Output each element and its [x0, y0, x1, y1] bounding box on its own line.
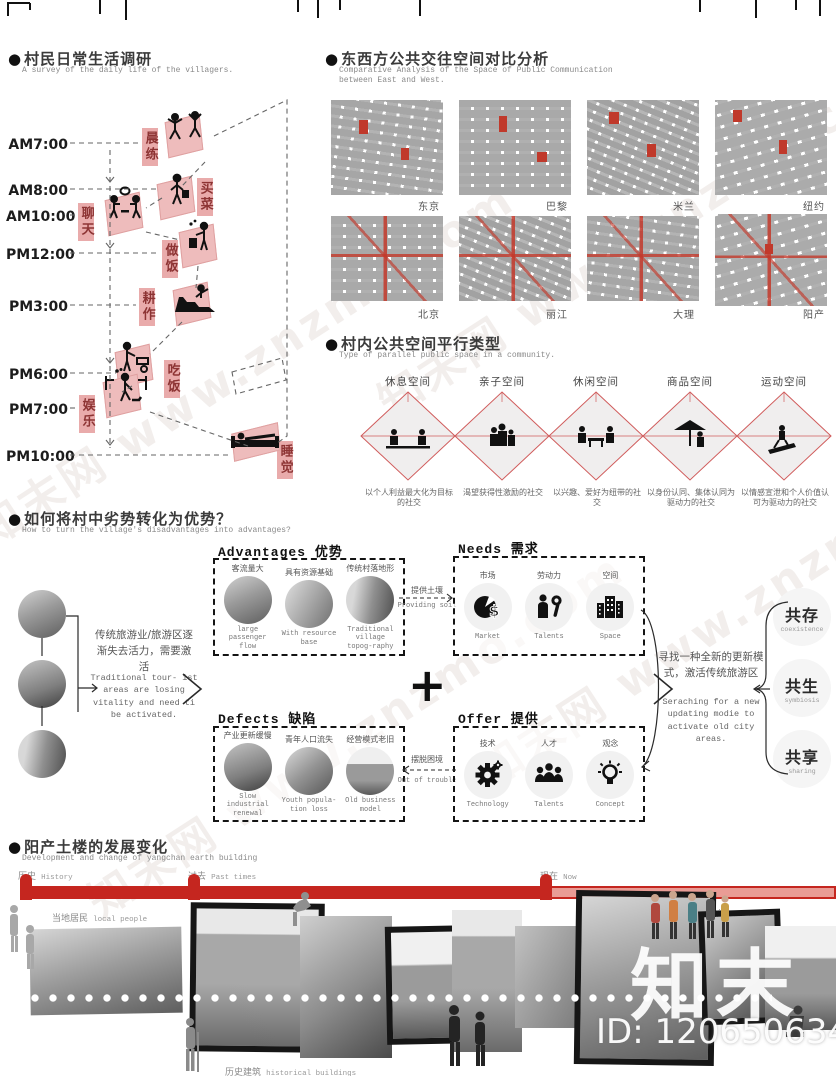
map-paris [459, 100, 571, 195]
pie-dollar-icon: $ [464, 583, 512, 631]
bullet-icon: ● [325, 50, 339, 68]
village-photo [18, 660, 66, 708]
time-label: AM7:00 [6, 137, 68, 153]
buildings-icon [586, 583, 634, 631]
walking-figure [176, 1016, 204, 1076]
map-label: 纽约 [803, 198, 825, 213]
offer-label-en: Talents [520, 801, 578, 809]
space-description: 以身份认同、集体认同为驱动力的社交 [645, 488, 737, 509]
trouble-arrow-label-cn: 摆脱困境 [399, 754, 455, 765]
painter-figure [283, 888, 317, 928]
isometric-space-boxes [348, 388, 832, 484]
defect-label-cn: 青年人口流失 [280, 734, 338, 745]
bullet-icon: ● [8, 510, 22, 528]
comparison-subtitle: Comparative Analysis of the Space of Pub… [339, 66, 617, 87]
transform-subtitle: How to turn the village's disadvantages … [22, 526, 291, 536]
offer-box: 技术 [453, 726, 645, 822]
advantage-label-en: With resource base [280, 630, 338, 646]
image-id-watermark: ID: 1206506342 [596, 1012, 836, 1052]
milestone-label-en: Past times [211, 874, 256, 882]
map-landmark [733, 110, 742, 122]
map-landmark [647, 144, 656, 157]
people-icon [525, 751, 573, 799]
time-label: PM6:00 [6, 367, 68, 383]
gear-icon [464, 751, 512, 799]
map-landmark [537, 152, 547, 162]
outcome-label-cn: 共生 [785, 673, 819, 697]
map-label: 东京 [418, 198, 440, 213]
map-label: 大理 [673, 306, 695, 321]
village-photo [18, 730, 66, 778]
need-label-cn: 空间 [581, 570, 639, 581]
advantages-box: 客流量大 large passenger flow 具有资源基础 With re… [213, 558, 405, 656]
space-name: 亲子空间 [457, 374, 547, 389]
advantage-label-cn: 客流量大 [219, 563, 277, 574]
activity-label-chip: 耕作 [139, 288, 155, 326]
map-landmark [401, 148, 409, 160]
offer-item: 观念 Concept [581, 738, 639, 809]
defect-label-en: Youth popula-tion loss [280, 797, 338, 813]
map-label: 北京 [418, 306, 440, 321]
defects-box: 产业更新缓慢 Slow industrial renewal 青年人口流失 Yo… [213, 726, 405, 822]
space-description: 以兴趣、爱好为纽带的社交 [551, 488, 643, 509]
outcome-label-cn: 共存 [785, 602, 819, 626]
offer-label-en: Technology [459, 801, 517, 809]
defect-label-cn: 产业更新缓慢 [219, 730, 277, 741]
space-name: 商品空间 [645, 374, 735, 389]
map-label: 巴黎 [546, 198, 568, 213]
need-label-en: Talents [520, 633, 578, 641]
advantage-label-en: Traditional village topog-raphy [341, 626, 399, 650]
milestone-label-en: History [41, 874, 73, 882]
map-beijing [331, 216, 443, 301]
defect-item: 产业更新缓慢 Slow industrial renewal [219, 730, 277, 817]
outcome-label-en: symbiosis [784, 697, 819, 704]
space-name: 休息空间 [363, 374, 453, 389]
need-label-en: Market [459, 633, 517, 641]
outcome-label-en: sharing [788, 768, 815, 775]
map-label: 米兰 [673, 198, 695, 213]
timeline-bar-solid [20, 886, 540, 899]
local-people-figures [2, 903, 42, 981]
advantage-photo [346, 576, 394, 624]
trouble-arrow-label-en: Out of trouble [395, 777, 459, 785]
need-item: 市场 $ Market [459, 570, 517, 641]
problem-text-en: Traditional tour- ist areas are losing v… [88, 672, 200, 721]
historical-buildings-label: 历史建筑 historical buildings [225, 1060, 356, 1076]
timeline-marker [540, 874, 552, 900]
label-cn: 当地居民 [52, 914, 88, 924]
earth-building-photo [515, 926, 577, 1028]
bullet-icon: ● [8, 50, 22, 68]
soil-arrow-label-cn: 提供土壤 [399, 585, 455, 596]
map-newyork [715, 100, 827, 195]
map-yangchan [715, 214, 827, 306]
outcome-coexistence: 共存 coexistence [773, 588, 831, 646]
advantage-item: 客流量大 large passenger flow [219, 563, 277, 650]
defect-label-en: Slow industrial renewal [219, 793, 277, 817]
time-label: AM8:00 [6, 183, 68, 199]
map-label: 阳产 [803, 306, 825, 321]
need-item: 劳动力 Talents [520, 570, 578, 641]
map-dali [587, 216, 699, 301]
needs-box: 市场 $ Market 劳动力 Talents [453, 556, 645, 656]
space-name: 休闲空间 [551, 374, 641, 389]
activity-label-chip: 做饭 [162, 240, 178, 278]
silhouette-figures [438, 1002, 498, 1072]
need-label-en: Space [581, 633, 639, 641]
activity-label-chip: 吃饭 [164, 360, 180, 398]
defect-item: 经营模式老旧 Old business model [341, 734, 399, 813]
activity-label-chip: 聊天 [78, 203, 94, 241]
space-description: 渴望获得性激励的社交 [457, 488, 549, 498]
village-photo [18, 590, 66, 638]
solution-text-en: Seraching for a new updating modie to ac… [652, 696, 770, 745]
map-label: 丽江 [546, 306, 568, 321]
map-tokyo [331, 100, 443, 195]
activity-label-chip: 娱乐 [79, 395, 95, 433]
advantage-item: 传统村落地形 Traditional village topog-raphy [341, 563, 399, 650]
map-milan [587, 100, 699, 195]
label-en: historical buildings [266, 1070, 356, 1076]
offer-header: Offer 提供 [458, 708, 539, 727]
advantage-photo [285, 580, 333, 628]
defect-photo [346, 747, 394, 795]
lightbulb-icon [586, 751, 634, 799]
map-landmark [779, 140, 787, 154]
time-label: PM10:00 [6, 449, 68, 465]
advantage-label-cn: 传统村落地形 [341, 563, 399, 574]
offer-item: 人才 Talents [520, 738, 578, 809]
label-en: local people [93, 916, 147, 924]
local-people-label: 当地居民 local people [52, 906, 147, 925]
defect-label-cn: 经营模式老旧 [341, 734, 399, 745]
advantage-label-cn: 具有资源基础 [280, 567, 338, 578]
milestone-label-en: Now [563, 874, 577, 882]
solution-text-cn: 寻找一种全新的更新模式，激活传统旅游区 [658, 650, 764, 682]
bullet-icon: ● [325, 335, 339, 353]
time-label: PM3:00 [6, 299, 68, 315]
time-label: PM7:00 [6, 402, 68, 418]
defect-label-en: Old business model [341, 797, 399, 813]
space-name: 运动空间 [739, 374, 829, 389]
parallel-space-subtitle: Type of parallel public space in a commu… [339, 351, 555, 361]
advantage-label-en: large passenger flow [219, 626, 277, 650]
defect-photo [285, 747, 333, 795]
earth-building-photo [300, 916, 392, 1058]
defect-photo [224, 743, 272, 791]
development-subtitle: Development and change of yangchan earth… [22, 854, 257, 864]
plus-sign: + [408, 658, 447, 712]
timeline-marker [20, 874, 32, 900]
offer-item: 技术 [459, 738, 517, 809]
timeline-marker [188, 874, 200, 900]
outcome-sharing: 共享 sharing [773, 730, 831, 788]
outcome-symbiosis: 共生 symbiosis [773, 659, 831, 717]
soil-arrow-label-en: Providing soil [395, 602, 459, 610]
needs-header: Needs 需求 [458, 538, 539, 557]
worker-wrench-icon [525, 583, 573, 631]
daily-life-subtitle: A survey of the daily life of the villag… [22, 66, 292, 76]
time-label: PM12:00 [6, 247, 68, 263]
problem-text-cn: 传统旅游业/旅游区逐渐失去活力，需要激活 [92, 628, 196, 675]
advantage-photo [224, 576, 272, 624]
activity-label-chip: 晨练 [142, 128, 158, 166]
space-description: 以个人利益最大化为目标的社交 [363, 488, 455, 509]
offer-label-cn: 观念 [581, 738, 639, 749]
defect-item: 青年人口流失 Youth popula-tion loss [280, 734, 338, 813]
label-cn: 历史建筑 [225, 1068, 261, 1076]
need-label-cn: 劳动力 [520, 570, 578, 581]
offer-label-en: Concept [581, 801, 639, 809]
defects-header: Defects 缺陷 [218, 708, 316, 727]
map-landmark [609, 112, 619, 124]
map-landmark [765, 244, 773, 254]
map-landmark [359, 120, 368, 134]
offer-label-cn: 技术 [459, 738, 517, 749]
need-label-cn: 市场 [459, 570, 517, 581]
map-landmark [499, 116, 507, 132]
analysis-poster: 知末网 www.znzmo.com 知末网 www.znzmo.com 知末网 … [0, 0, 836, 1076]
offer-label-cn: 人才 [520, 738, 578, 749]
outcome-label-en: coexistence [781, 626, 824, 633]
time-label: AM10:00 [6, 209, 68, 225]
need-item: 空间 Space [581, 570, 639, 641]
bullet-icon: ● [8, 838, 22, 856]
svg-text:$: $ [489, 602, 499, 620]
outcome-label-cn: 共享 [785, 744, 819, 768]
map-lijiang [459, 216, 571, 301]
space-description: 以情感宣泄和个人价值认可为驱动力的社交 [739, 488, 831, 509]
advantage-item: 具有资源基础 With resource base [280, 567, 338, 646]
